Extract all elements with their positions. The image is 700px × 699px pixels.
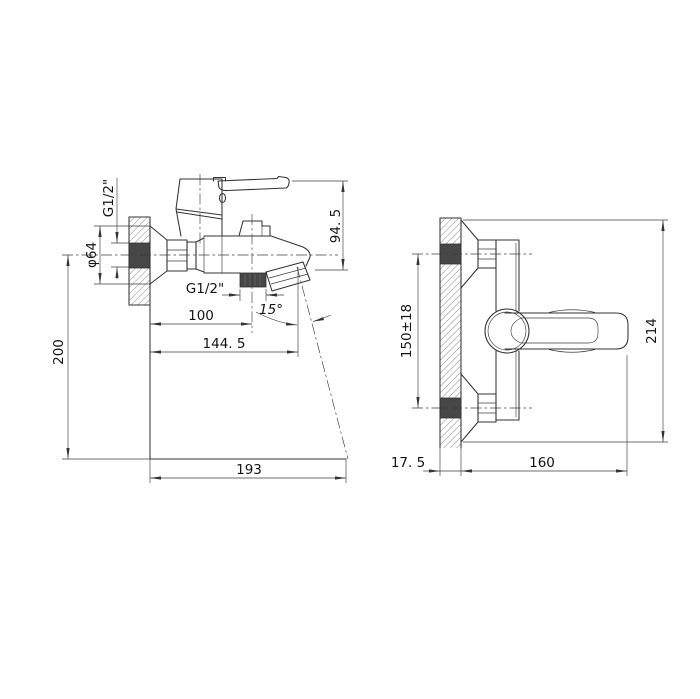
body-seams (204, 236, 222, 273)
diverter-knob (239, 221, 270, 236)
spout-outlet-rim (269, 268, 308, 284)
front-view-wall-section (440, 218, 461, 476)
mixer-body (204, 236, 310, 273)
dim-label-body-length: 160 (529, 455, 555, 471)
dim-label-stream-reach: 193 (236, 462, 262, 478)
dim-label-wall-offset: 17. 5 (391, 455, 425, 471)
connector-ring (187, 242, 196, 269)
side-view: G1/2" φ64 200 100 144. 5 193 94. 5 (51, 174, 348, 483)
front-view-centerlines (412, 254, 532, 408)
dim-label-shower-offset: 100 (188, 308, 214, 324)
dim-label-handle-height: 94. 5 (328, 209, 344, 243)
handle-lever (505, 313, 628, 349)
stream-angle-line (297, 267, 348, 459)
ext-lines-shower-thread (240, 289, 266, 301)
body-tube (496, 240, 519, 420)
handle-lever (218, 177, 289, 191)
dim-label-inlet-spacing: 150±18 (399, 304, 415, 358)
hex-nut-facets (167, 250, 187, 261)
dim-label-flange-diameter: φ64 (84, 242, 100, 268)
spout-outlet (266, 262, 310, 291)
shower-outlet-thread (240, 273, 266, 287)
technical-drawing-canvas: G1/2" φ64 200 100 144. 5 193 94. 5 (0, 0, 700, 699)
front-view: 150±18 214 17. 5 160 (391, 218, 668, 476)
dim-label-shower-thread: G1/2" (186, 281, 224, 297)
ext-lines-overall-length (463, 220, 668, 442)
dim-label-overall-length: 214 (644, 318, 660, 344)
wall-extension-lines (440, 448, 461, 476)
dim-label-spout-offset: 144. 5 (203, 336, 246, 352)
side-view-wall-section (129, 217, 150, 459)
drawing-page: G1/2" φ64 200 100 144. 5 193 94. 5 (0, 0, 700, 699)
side-view-faucet (150, 177, 310, 292)
front-view-faucet (461, 220, 628, 442)
angle-arc-right (313, 315, 331, 322)
dim-label-mount-height: 200 (51, 339, 67, 365)
cartridge-dome-outer (485, 309, 529, 353)
cartridge-dome-inner (488, 312, 526, 350)
supply-nipple (129, 243, 150, 268)
cartridge-housing (176, 179, 222, 236)
front-view-dimensions: 150±18 214 17. 5 160 (391, 220, 668, 476)
body-silhouette-arcs (549, 310, 595, 353)
hex-nut (167, 240, 187, 271)
dim-label-wall-thread: G1/2" (101, 179, 117, 217)
side-view-dimensions: G1/2" φ64 200 100 144. 5 193 94. 5 (51, 178, 348, 483)
dim-label-spout-angle: 15° (259, 302, 283, 318)
